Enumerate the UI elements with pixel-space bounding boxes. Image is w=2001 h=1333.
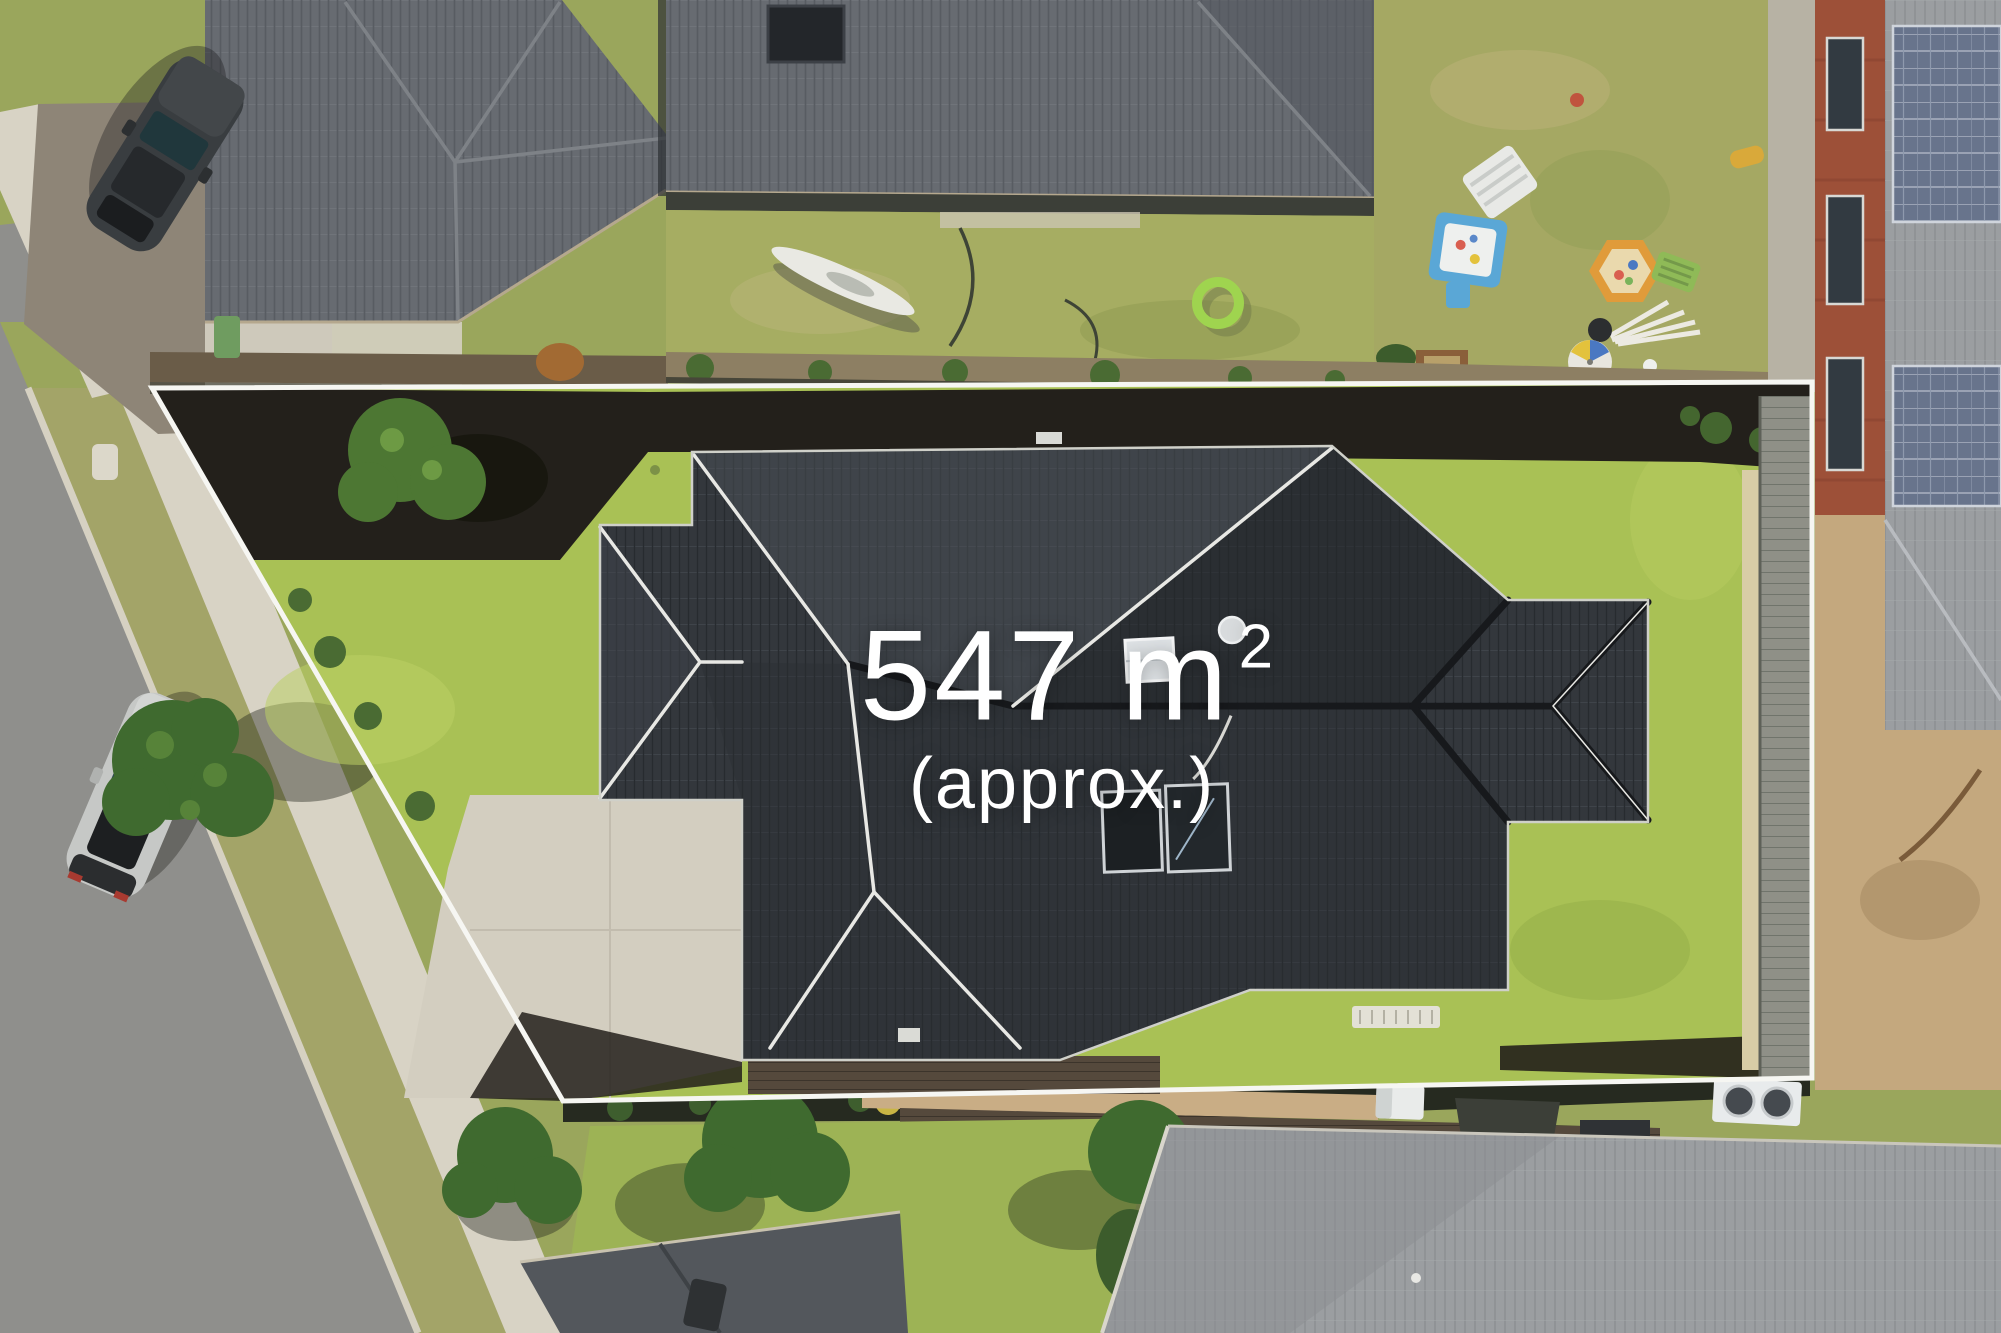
- solar-array-lower: [1893, 366, 2001, 506]
- front-deck: [748, 1056, 1160, 1094]
- utility-pit: [92, 444, 118, 480]
- ne-dry-patch: [1430, 50, 1610, 130]
- red-ball: [1570, 93, 1584, 107]
- side-paling-fence: [1760, 396, 1812, 1078]
- lawn-dark-patch: [1510, 900, 1690, 1000]
- land-area-qualifier: (approx.): [909, 743, 1215, 825]
- lawn-grate: [1352, 1006, 1440, 1028]
- ne-green-patch: [1530, 150, 1670, 250]
- dirt-patch: [1860, 860, 1980, 940]
- eave-vent: [898, 1028, 920, 1042]
- land-area-value: 547 m: [860, 605, 1231, 748]
- brown-shrub: [536, 343, 584, 381]
- blue-step-stool: [1446, 282, 1470, 308]
- lawn-edging: [1742, 470, 1760, 1070]
- n-patio-edge: [940, 212, 1140, 228]
- evaporative-cooler: [768, 6, 844, 62]
- white-ute: [1375, 1084, 1424, 1120]
- se-roof-vent: [1411, 1273, 1421, 1283]
- aerial-photo: 547 m2 (approx.): [0, 0, 2001, 1333]
- neighbour-north: [658, 0, 1374, 390]
- land-area-superscript: 2: [1239, 613, 1276, 682]
- roof-vent-small: [1036, 432, 1062, 444]
- ac-unit: [1712, 1078, 1802, 1127]
- brick-windows: [1827, 38, 1863, 470]
- green-wheelie-bin: [214, 316, 240, 358]
- neighbour-east-brick: [1815, 0, 2001, 1090]
- solar-array-upper: [1893, 26, 2001, 222]
- neighbour-northeast: [1374, 0, 1815, 394]
- ne-side-path: [1768, 0, 1815, 392]
- neighbours-south: [520, 1078, 2001, 1333]
- umbrella-base: [1588, 318, 1612, 342]
- green-grass-patch: [1080, 300, 1300, 360]
- blue-sandpit: [1428, 211, 1509, 288]
- land-area-label: 547 m2: [860, 603, 1276, 750]
